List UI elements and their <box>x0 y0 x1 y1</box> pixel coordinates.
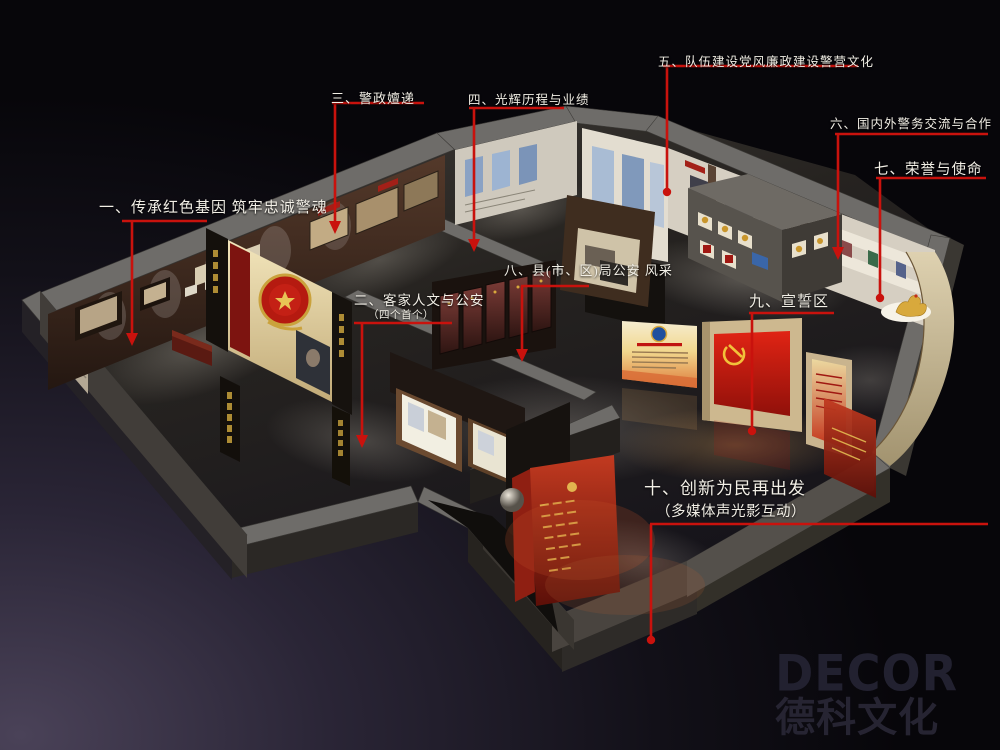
zone-label-7: 七、荣誉与使命 <box>874 158 983 179</box>
zone8-end-display-case <box>560 195 655 307</box>
sphere-sculpture <box>500 488 524 512</box>
brand-logo-chinese: 德科文化 <box>775 698 958 738</box>
exhibition-render-page: 一、传承红色基因 筑牢忠诚警魂 二、客家人文与公安 （四个首个） 三、警政嬗递 … <box>0 0 1000 750</box>
zone-label-10-subtitle: （多媒体声光影互动） <box>656 500 806 521</box>
zone-label-6: 六、国内外警务交流与合作 <box>830 113 992 132</box>
zone-label-4: 四、光辉历程与业绩 <box>468 89 590 108</box>
police-emblem-icon <box>652 327 667 342</box>
brand-logo-text: DECOR <box>775 648 958 698</box>
zone-label-5: 五、队伍建设党风廉政建设警营文化 <box>658 51 874 70</box>
zone-label-1: 一、传承红色基因 筑牢忠诚警魂 <box>99 196 328 217</box>
zone-label-9: 九、宣誓区 <box>749 290 829 311</box>
brand-logo: DECOR 德科文化 <box>775 650 958 738</box>
zone-label-8: 八、县(市、区)局公安 风采 <box>504 260 673 279</box>
zone-label-3: 三、警政嬗递 <box>331 88 415 107</box>
gold-emblem-icon <box>567 482 577 492</box>
zone-label-2: 二、客家人文与公安 <box>354 289 485 309</box>
zone-label-10: 十、创新为民再出发 <box>644 474 806 499</box>
zone-label-2-subtitle: （四个首个） <box>368 307 434 322</box>
